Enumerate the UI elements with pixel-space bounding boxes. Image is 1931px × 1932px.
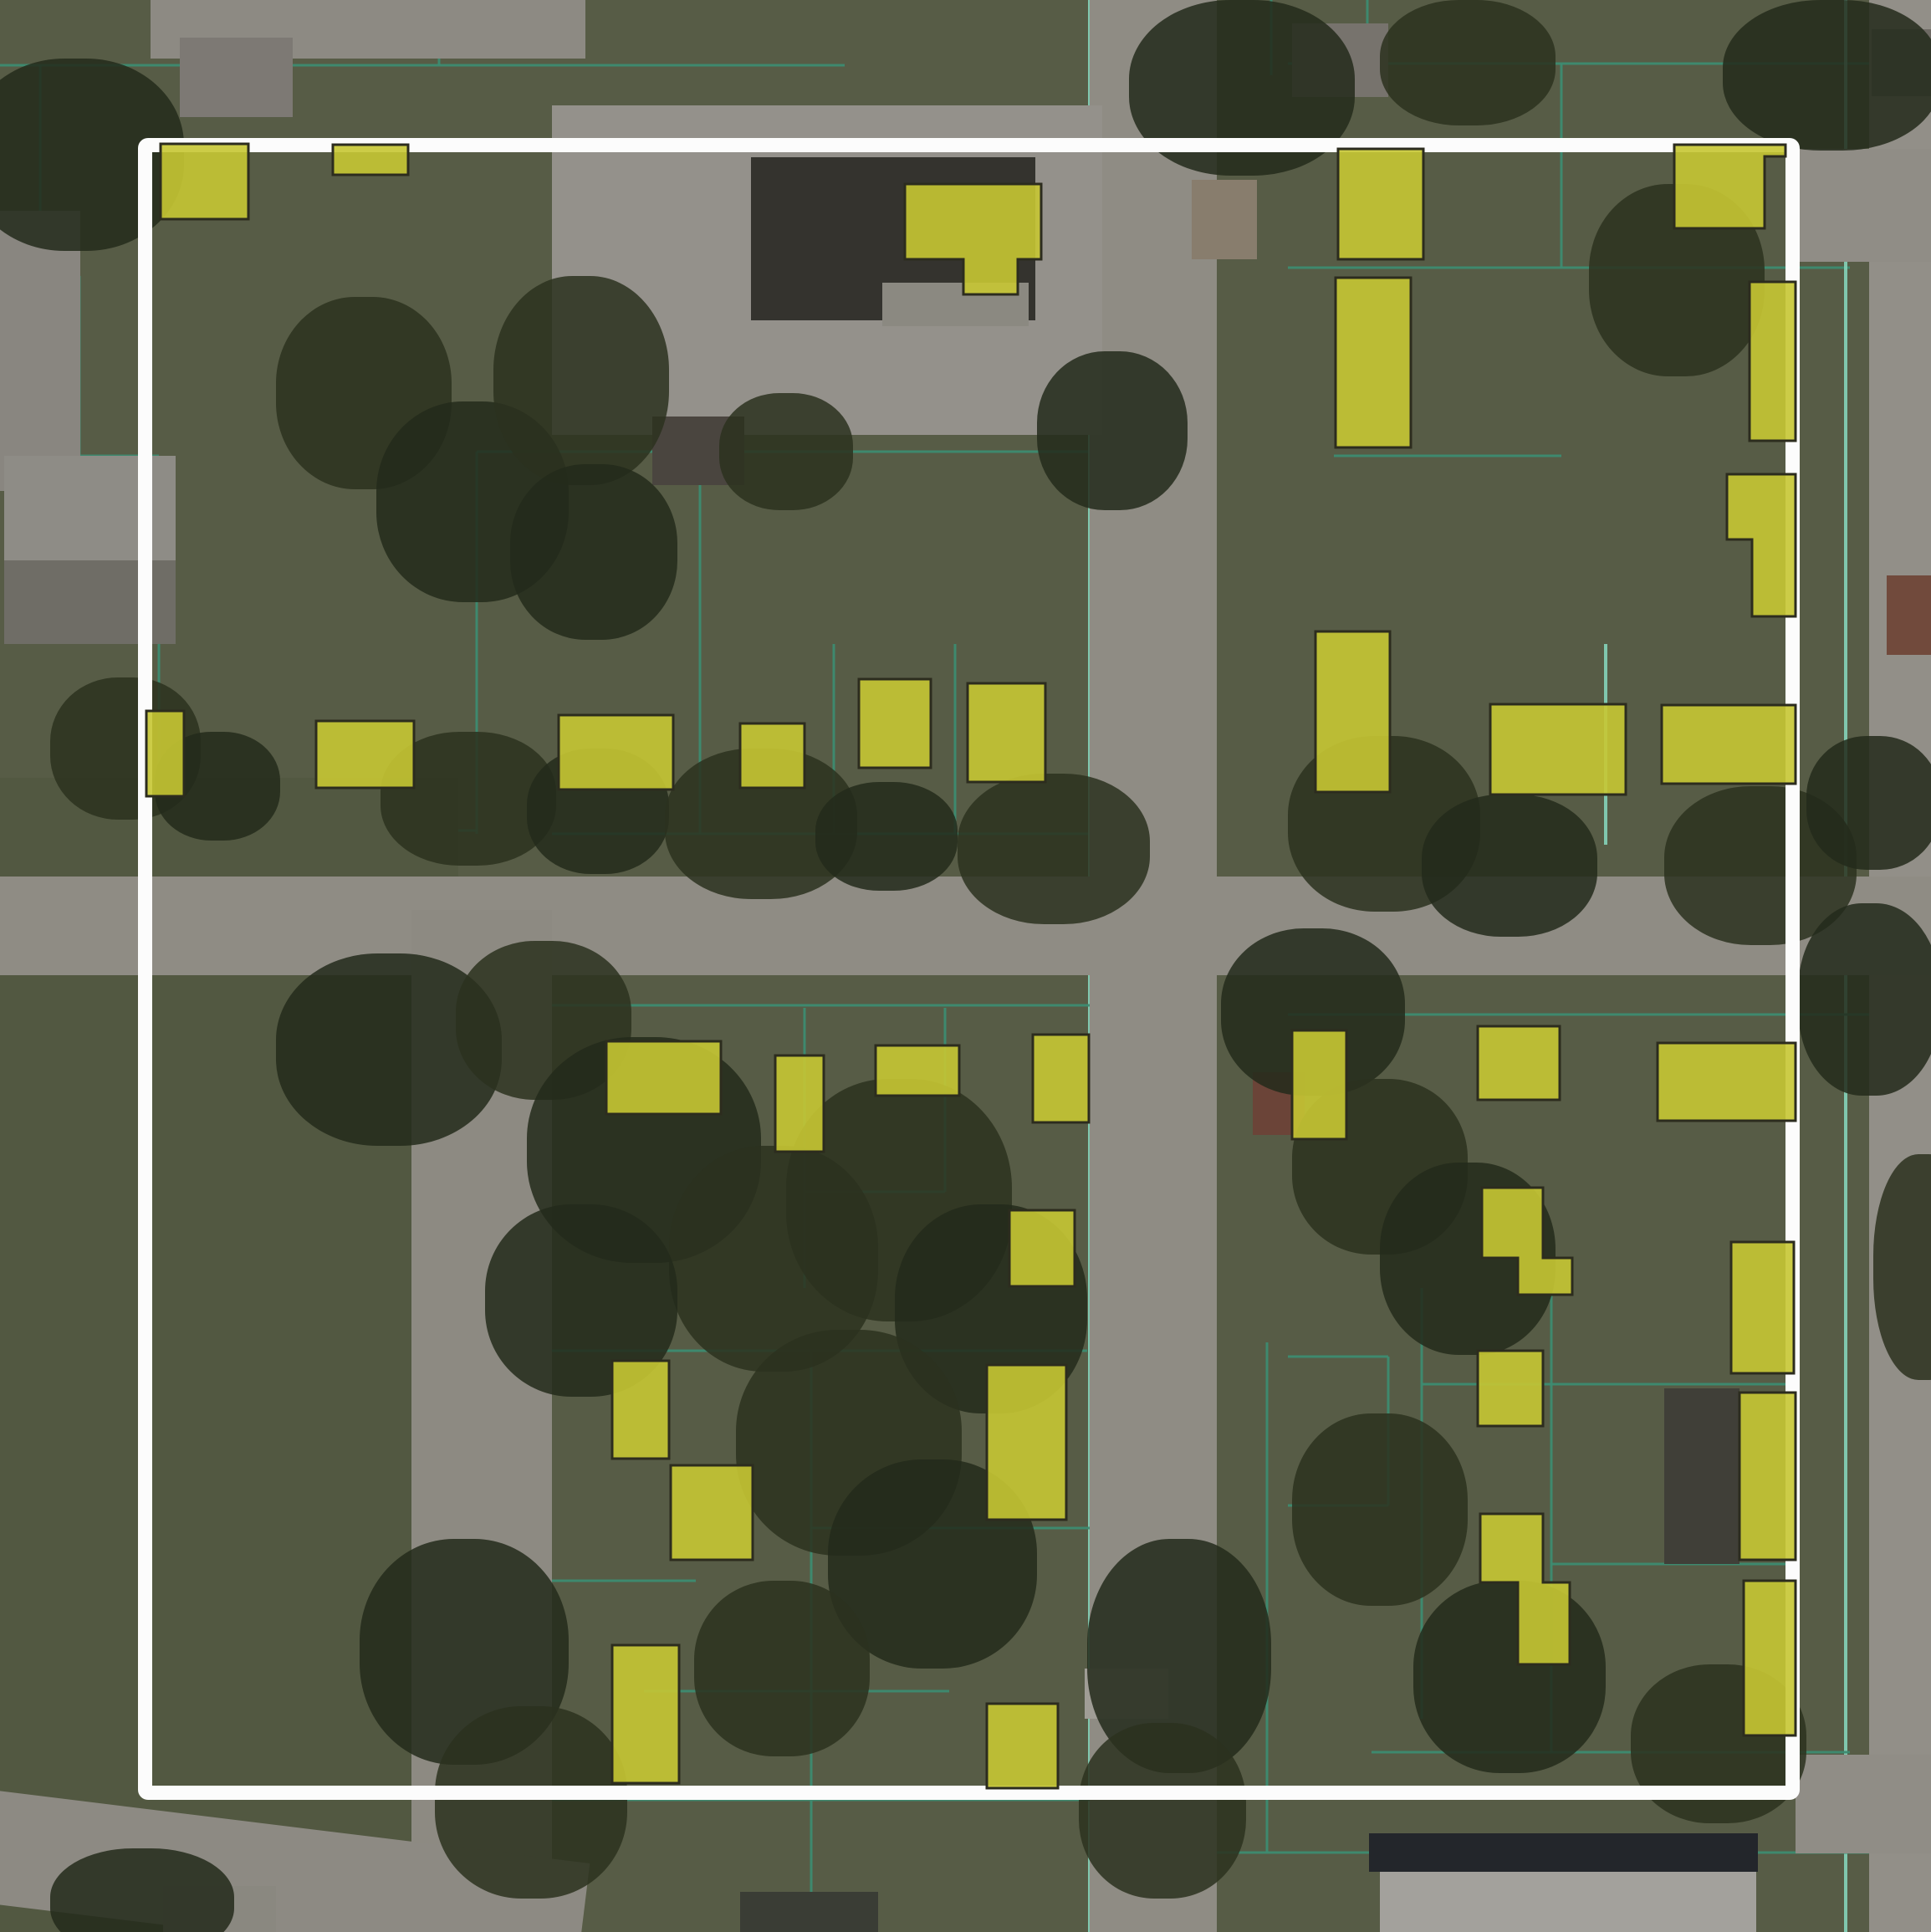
building-footprint-annotation[interactable] bbox=[987, 1704, 1058, 1788]
building-footprint-annotation[interactable] bbox=[1739, 1393, 1796, 1560]
building-footprint-annotation[interactable] bbox=[1336, 278, 1411, 447]
building-footprint-annotation[interactable] bbox=[1727, 474, 1796, 616]
building-footprint-annotation[interactable] bbox=[1338, 149, 1423, 259]
building-footprint-annotation[interactable] bbox=[671, 1465, 753, 1560]
building-footprint-annotation[interactable] bbox=[968, 683, 1045, 782]
building-footprint-annotation[interactable] bbox=[161, 144, 248, 219]
building-footprint-annotation[interactable] bbox=[1731, 1242, 1794, 1373]
building-footprint-annotation[interactable] bbox=[1482, 1188, 1572, 1295]
building-footprint-annotation[interactable] bbox=[612, 1361, 669, 1459]
annotation-overlay bbox=[0, 0, 1931, 1932]
building-footprint-annotation[interactable] bbox=[559, 715, 673, 790]
building-footprint-annotation[interactable] bbox=[740, 723, 805, 788]
building-footprint-annotation[interactable] bbox=[316, 721, 414, 788]
building-footprint-annotation[interactable] bbox=[606, 1041, 721, 1114]
building-footprint-annotation[interactable] bbox=[1033, 1035, 1089, 1122]
building-footprint-annotation[interactable] bbox=[333, 145, 408, 175]
building-footprint-annotation[interactable] bbox=[987, 1365, 1066, 1520]
building-footprint-annotation[interactable] bbox=[146, 711, 184, 796]
building-footprint-annotation[interactable] bbox=[905, 184, 1041, 294]
building-footprint-annotation[interactable] bbox=[1744, 1581, 1796, 1735]
building-footprint-annotation[interactable] bbox=[859, 679, 931, 768]
building-footprint-annotation[interactable] bbox=[1480, 1514, 1570, 1664]
building-footprint-annotation[interactable] bbox=[775, 1055, 824, 1152]
building-footprint-annotation[interactable] bbox=[1658, 1043, 1796, 1121]
building-footprint-annotation[interactable] bbox=[1315, 631, 1390, 792]
building-footprint-annotation[interactable] bbox=[1478, 1351, 1543, 1426]
building-footprint-annotation[interactable] bbox=[1478, 1026, 1560, 1100]
map-canvas[interactable] bbox=[0, 0, 1931, 1932]
building-footprint-annotation[interactable] bbox=[1750, 282, 1796, 441]
building-footprint-annotation[interactable] bbox=[876, 1045, 959, 1096]
building-footprint-annotation[interactable] bbox=[1662, 705, 1796, 784]
building-footprint-annotation[interactable] bbox=[1009, 1210, 1075, 1286]
building-footprint-annotation[interactable] bbox=[1292, 1030, 1346, 1139]
building-footprint-annotation[interactable] bbox=[1674, 145, 1785, 228]
building-footprint-annotation[interactable] bbox=[612, 1645, 679, 1783]
building-footprint-annotation[interactable] bbox=[1490, 704, 1626, 795]
